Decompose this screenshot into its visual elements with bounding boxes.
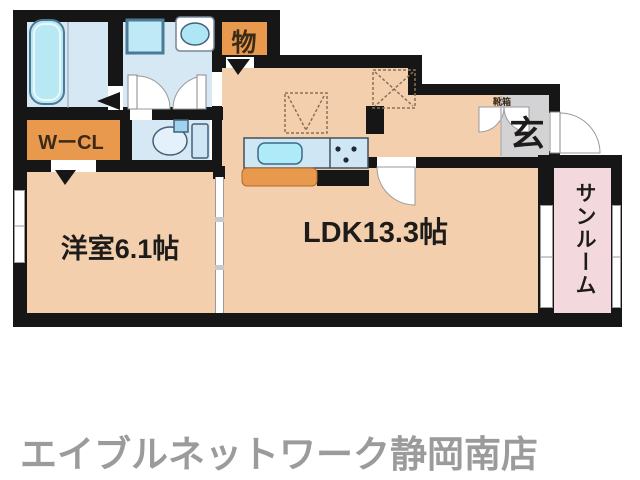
western-room-label: 洋室6.1帖: [40, 227, 200, 266]
floorplan-canvas: 洋室6.1帖 LDK13.3帖 玄 物 WーCL 靴箱 サンルーム エイブルネッ…: [0, 0, 640, 480]
ldk-room-label: LDK13.3帖: [283, 209, 468, 251]
bathroom-door-triangle: [97, 92, 120, 110]
appliance-space-icon: [285, 93, 327, 133]
front-door-arc: [550, 112, 600, 153]
washing-machine-icon: [127, 20, 163, 53]
toilet-door-arc: [128, 75, 170, 109]
washroom-door-arc: [173, 75, 206, 109]
shoebox-label: 靴箱: [480, 95, 524, 108]
wcl-door-triangle: [55, 170, 76, 185]
bathtub-icon: [30, 20, 64, 104]
sliding-door-joints: [215, 217, 224, 270]
kitchen-low-counter: [242, 168, 317, 186]
wcl-label: WーCL: [26, 126, 116, 155]
toilet-icon: [153, 120, 208, 158]
entrance-label: 玄: [507, 106, 547, 157]
storage-label: 物: [222, 23, 266, 59]
ldk-door-arc: [377, 167, 415, 205]
storage-door-triangle: [227, 59, 250, 75]
refrigerator-space-icon: [373, 70, 415, 108]
vanity-sink-icon: [176, 17, 214, 51]
sunroom-label: サンルーム: [571, 165, 597, 313]
kitchen-counter: [244, 138, 368, 168]
store-name-text: エイブルネットワーク静岡南店: [0, 424, 558, 478]
kitchen-sink-icon: [258, 143, 302, 164]
